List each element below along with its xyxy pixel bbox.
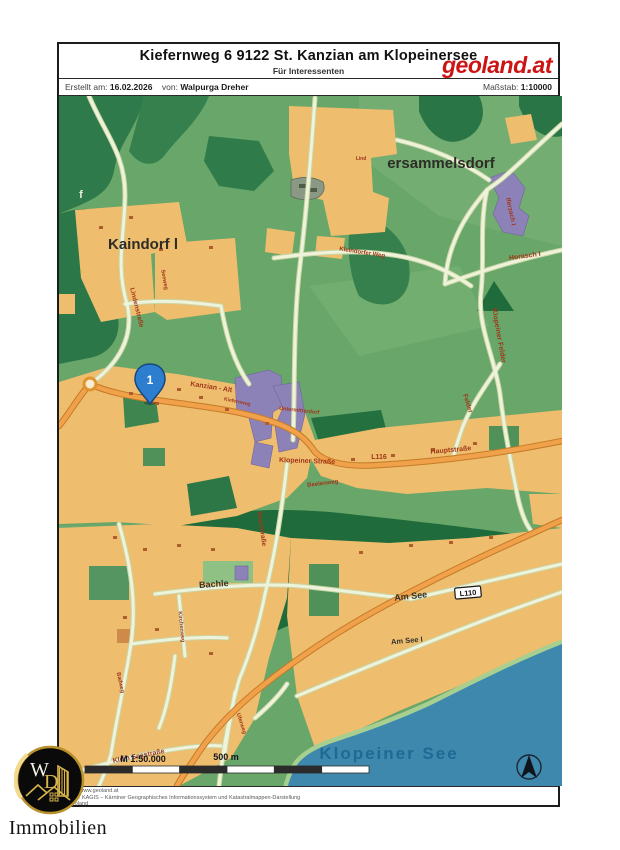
map-pin-label: 1 bbox=[147, 373, 154, 387]
meta-row: Erstellt am: 16.02.2026 von: Walpurga Dr… bbox=[59, 79, 558, 96]
map-label: Bachle bbox=[199, 578, 229, 590]
scale-bar-segment bbox=[85, 766, 132, 773]
scale-value: 1:10000 bbox=[521, 82, 552, 92]
scale-bar-segment bbox=[322, 766, 369, 773]
sheet-footer: https://www.geoland.at Quelle: KAGIS – K… bbox=[59, 786, 558, 808]
created-label: Erstellt am: bbox=[65, 82, 108, 92]
scale-bar-segment bbox=[132, 766, 179, 773]
scale-bar-segment bbox=[180, 766, 227, 773]
scale-info: Maßstab: 1:10000 bbox=[483, 82, 552, 92]
by-label: von: bbox=[162, 82, 178, 92]
map-sheet: Kiefernweg 6 9122 St. Kanzian am Klopein… bbox=[57, 42, 560, 807]
map-area: L110 LindersammelsdorfKaindorf lfKanzian… bbox=[59, 96, 562, 786]
scale-bar-segment bbox=[274, 766, 321, 773]
immobilien-label: Immobilien bbox=[0, 817, 116, 840]
created-value: 16.02.2026 bbox=[110, 82, 153, 92]
geoland-logo: geoland.at bbox=[442, 52, 552, 79]
road-shield-label: L110 bbox=[459, 588, 476, 598]
map-label: ersammelsdorf bbox=[387, 155, 496, 172]
map-label: Lind bbox=[356, 156, 367, 162]
scale-ratio-label: M 1:50.000 bbox=[120, 754, 166, 764]
sheet-header: Kiefernweg 6 9122 St. Kanzian am Klopein… bbox=[59, 44, 558, 79]
wd-immobilien-logo: W D bbox=[14, 744, 86, 816]
created-info: Erstellt am: 16.02.2026 von: Walpurga Dr… bbox=[65, 82, 249, 92]
map-label: L116 bbox=[371, 454, 387, 461]
scale-label: Maßstab: bbox=[483, 82, 518, 92]
scale-bar-segment bbox=[227, 766, 274, 773]
footer-line: © geoland bbox=[63, 801, 558, 808]
map-label: Kaindorf l bbox=[108, 236, 178, 253]
road-shield: L110 bbox=[455, 586, 482, 599]
map-canvas: L110 LindersammelsdorfKaindorf lfKanzian… bbox=[59, 96, 562, 786]
by-value: Walpurga Dreher bbox=[180, 82, 248, 92]
wd-logo-graphic: W D bbox=[14, 744, 86, 816]
map-label: Klopeiner See bbox=[319, 744, 458, 763]
map-label: f bbox=[79, 189, 83, 201]
scale-distance-label: 500 m bbox=[213, 752, 239, 762]
roundabout bbox=[84, 378, 96, 390]
